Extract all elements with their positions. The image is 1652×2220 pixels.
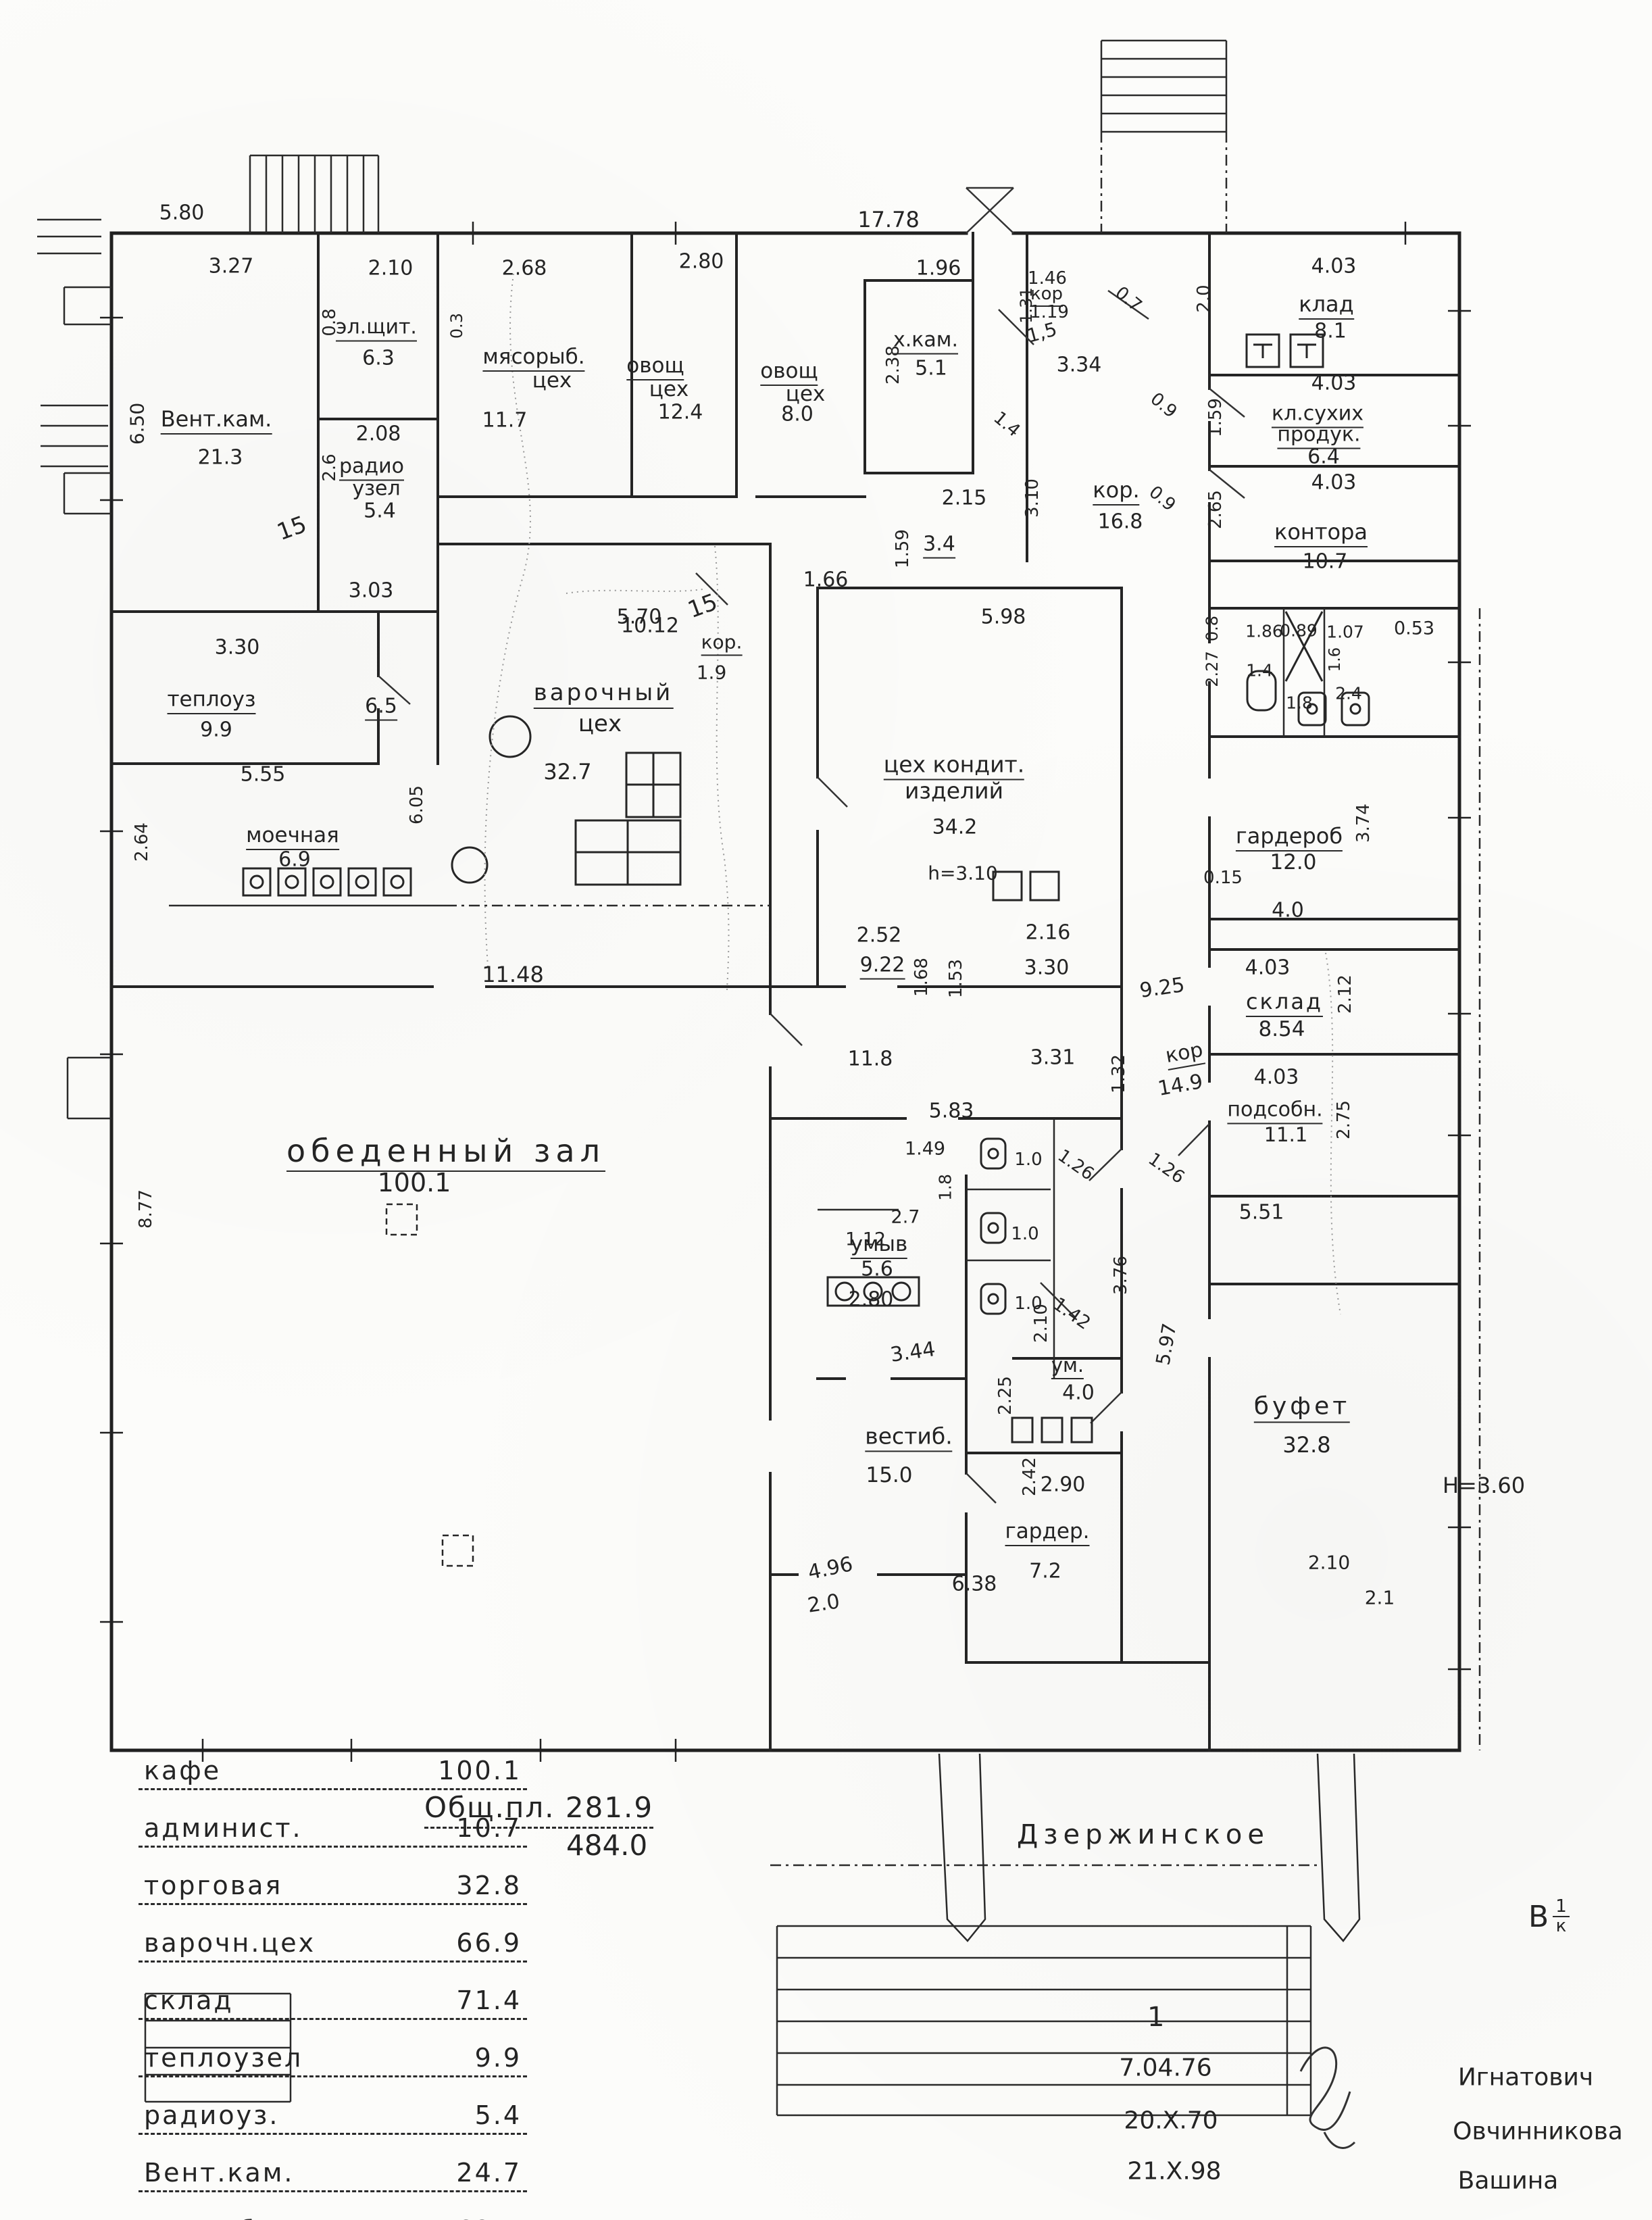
wash-units [243,868,411,895]
plan-label: 2.80 [849,1288,894,1312]
plan-label: 2.68 [502,257,547,280]
plan-label: 3.30 [1024,956,1070,980]
plan-label: 1.0 [1014,1150,1042,1170]
plan-label: 4.03 [1245,956,1291,980]
plan-label: 32.8 [1282,1432,1330,1458]
kettle [452,847,487,883]
toilet-fixtures [981,1139,1005,1314]
plan-label: 0.8 [320,308,340,336]
plan-label: эл.щит. [336,316,417,342]
plan-label: 2.1 [1365,1587,1395,1609]
legend-room-name: теплоузел [144,2043,303,2073]
plan-label: 2.0 [806,1589,841,1617]
legend-room-area: 100.1 [438,1756,522,1785]
plan-label: 9.9 [200,718,232,742]
plan-label: 1.32 [1109,1054,1129,1093]
plan-label: мясорыб. [482,345,584,372]
plan-label: 1.66 [803,568,849,592]
plan-label: 12.0 [1270,850,1316,874]
plan-label: 7.2 [1029,1560,1061,1583]
plan-label: 1.4 [1246,661,1273,681]
legend-room-name: варочн.цех [144,1928,316,1958]
legend-room-name: торговая [144,1871,282,1900]
plan-label: 2.38 [883,345,903,385]
kettle [490,716,530,757]
legend-room-name: кафе [144,1756,221,1785]
plan-label: 5.6 [861,1258,893,1281]
plan-label: гардероб [1236,823,1343,852]
plan-label: 6.3 [362,347,395,370]
plan-label: 3.30 [215,636,260,660]
plan-label: 3.76 [1111,1256,1131,1295]
plan-label: 2.15 [942,487,987,510]
stairs-bottom-main [777,1926,1311,2115]
plan-label: 4.0 [1062,1381,1095,1405]
plan-label: 5.51 [1239,1201,1284,1225]
plan-label: 1.96 [916,257,961,280]
legend-row: кафе100.1 [139,1756,527,1790]
plan-label: 3.4 [923,533,955,559]
legend-row: служебн.162.1 [139,2215,527,2220]
legend-row: Вент.кам.24.7 [139,2158,527,2192]
date-note: 21.X.98 [1127,2158,1221,2186]
plan-label: 1.8 [1286,693,1313,713]
plan-label: варочный [534,679,674,709]
plan-label: 2.0 [1194,285,1214,312]
plan-label: 5.83 [929,1100,974,1123]
plan-label: 1.31 [1017,287,1036,323]
plan-label: 5.55 [241,763,286,787]
mark-numerator: 1 [1553,1898,1570,1917]
plan-label: 17.78 [857,207,920,232]
plan-label: 4.03 [1254,1066,1299,1089]
plan-label: 1.49 [905,1139,945,1160]
column [386,1204,417,1235]
legend-room-area: 66.9 [456,1928,522,1958]
plan-label: 5.70 [617,606,662,629]
plan-label: 2.27 [1203,651,1222,687]
legend-row: варочн.цех66.9 [139,1928,527,1963]
plan-label: цех [649,377,689,401]
plan-label: 2.64 [132,822,152,862]
plan-label: гардер. [1005,1519,1090,1546]
plan-label: буфет [1254,1393,1350,1423]
plan-label: моечная [246,823,339,850]
plan-label: 5.98 [981,606,1026,629]
plan-label: кор. [701,631,743,656]
plan-label: 1.86 [1245,622,1283,641]
plan-label: 2.80 [679,250,724,274]
urinal-row [1012,1418,1092,1442]
plan-label: 3.31 [1030,1046,1076,1070]
plan-label: Вент.кам. [161,406,272,435]
plan-label: умыв [851,1232,907,1259]
plan-label: Н=3.60 [1443,1473,1525,1498]
plan-label: клад [1299,291,1354,320]
signer-name: Овчинникова [1453,2118,1623,2146]
plan-label: 1.8 [936,1174,955,1201]
plan-label: 6.4 [1307,445,1340,469]
date-note: 20.X.70 [1124,2107,1218,2135]
plan-label: 3.74 [1353,804,1374,843]
plan-label: цех [578,710,622,737]
plan-label: 2.25 [995,1376,1016,1415]
plan-label: цех [532,368,572,393]
plan-label: 4.03 [1311,372,1357,395]
signer-name: Вашина [1458,2167,1559,2195]
plan-label: кор. [1093,477,1139,505]
plan-label: 1.59 [893,529,913,568]
plan-label: 2.10 [1308,1552,1350,1574]
plan-label: овощ [626,353,684,380]
plan-label: 2.65 [1205,490,1226,529]
plan-label: 8.77 [136,1189,156,1229]
plan-label: контора [1274,519,1368,547]
plan-label: 34.2 [932,816,978,839]
plan-label: 3.34 [1057,353,1102,377]
plan-label: 5.1 [915,357,947,380]
plan-label: 2.4 [1335,684,1362,704]
plan-label: 0.3 [447,313,466,339]
plan-label: 11.8 [848,1047,893,1071]
plan-label: подсобн. [1227,1098,1322,1125]
plan-label: 8.0 [781,403,814,426]
legend-room-name: радиоуз. [144,2100,279,2130]
plan-label: 8.1 [1314,320,1347,343]
legend-room-name: склад [144,1985,234,2015]
legend-row: склад71.4 [139,1985,527,2020]
plan-label: 4.03 [1311,255,1357,278]
plan-label: 2.7 [891,1207,920,1228]
plan-label: 2.90 [1041,1473,1086,1497]
plan-label: 0.89 [1280,621,1318,641]
plan-label: вестиб. [865,1423,952,1452]
legend-room-area: 24.7 [456,2158,522,2188]
plan-label: 0.15 [1203,868,1243,888]
plan-label: 6.38 [952,1573,997,1596]
plan-label: 0.8 [1203,616,1222,641]
legend-room-area: 9.9 [475,2043,522,2073]
door-marks [378,291,1245,1503]
plan-label: 1.9 [697,662,727,684]
plan-label: 6.05 [407,785,427,824]
plan-label: обеденный зал [286,1133,605,1172]
plan-label: 6.50 [126,403,149,445]
plan-label: 4.03 [1311,471,1357,495]
plan-label: 21.3 [198,446,243,470]
plan-label: 2.10 [1031,1304,1051,1343]
plan-label: 11.1 [1264,1123,1308,1146]
legend-room-area: 5.4 [475,2100,522,2130]
plan-label: изделий [905,778,1003,804]
plan-label: склад [1246,989,1323,1017]
plan-label: 2.12 [1335,975,1355,1014]
legend-room-name: служебн. [144,2215,286,2220]
legend-room-name: Вент.кам. [144,2158,295,2188]
stairs-top-right [1101,41,1226,132]
plan-label: 2.52 [857,924,902,947]
legend-room-area: 32.8 [456,1871,522,1900]
legend-row: теплоузел9.9 [139,2043,527,2077]
plan-label: 1.53 [946,959,966,998]
stairs-top-left [250,155,378,233]
column [443,1535,473,1566]
plan-label: 8.54 [1258,1017,1305,1041]
plan-label: 3.27 [209,255,254,278]
plan-label: 16.8 [1098,510,1143,534]
plan-label: 1.68 [911,958,932,997]
stairs-nw-corner [37,220,101,253]
signer-name: Игнатович [1458,2064,1593,2092]
plan-label: 12.4 [658,401,703,424]
legend-room-area: 71.4 [456,1985,522,2015]
plan-label: h=3.10 [928,862,998,885]
plan-label: 2.08 [356,422,401,446]
mark-fraction: 1 к [1553,1898,1570,1936]
plan-label: 15.0 [866,1463,912,1487]
plan-label: 11.7 [482,409,528,433]
plan-label: 100.1 [378,1168,451,1198]
plan-mark: В 1 к [1528,1898,1570,1936]
legend-row: торговая32.8 [139,1871,527,1905]
legend-row: радиоуз.5.4 [139,2100,527,2135]
plan-label: 2.10 [368,257,414,280]
plan-label: 5.80 [159,201,205,225]
plan-label: 11.48 [482,962,544,987]
plan-label: 0.53 [1394,618,1434,639]
mark-denominator: к [1556,1917,1567,1935]
plan-label: 2.6 [320,453,340,481]
plan-label: 5.4 [364,499,396,523]
signature-scribble [1301,2048,1355,2148]
plan-label: 9.22 [860,954,905,980]
plan-label: 1.59 [1205,398,1226,437]
entry-door-x [966,188,1013,233]
plan-label: 1.07 [1326,622,1364,642]
plan-label: 32.7 [543,759,591,785]
plan-label: 6.5 [365,695,397,721]
legend-room-name: админист. [144,1813,303,1843]
plan-label: ум. [1051,1354,1084,1379]
plan-label: 1.6 [1326,647,1344,672]
plan-label: 4.0 [1272,899,1304,922]
plan-label: 6.9 [278,848,311,872]
plan-label: теплоуз [167,687,255,714]
total-area-line2: 484.0 [566,1829,647,1862]
legend-room-area: 162.1 [438,2215,522,2220]
plan-label: 2.75 [1334,1100,1354,1139]
plan-label: 10.7 [1303,550,1348,574]
plan-label: цех кондит. [884,751,1024,781]
sheet-number: 1 [1147,2002,1164,2033]
floor-plan-scan: 5.803.272.102.682.8017.781.961.46кор1.19… [0,0,1652,2220]
plan-label: 1.0 [1011,1224,1038,1244]
settlement-label: Дзержинское [1017,1819,1270,1850]
plan-label: 2.16 [1026,921,1071,945]
date-note: 7.04.76 [1119,2054,1211,2082]
plan-label: 3.10 [1022,478,1043,518]
stairs-left-mini [41,405,108,466]
mark-letter: В [1528,1900,1549,1934]
plan-label: узел [352,477,400,501]
plan-label: 3.03 [349,579,394,603]
total-area-line1: Общ.пл. 281.9 [424,1791,653,1829]
plan-label: 2.42 [1020,1457,1040,1496]
